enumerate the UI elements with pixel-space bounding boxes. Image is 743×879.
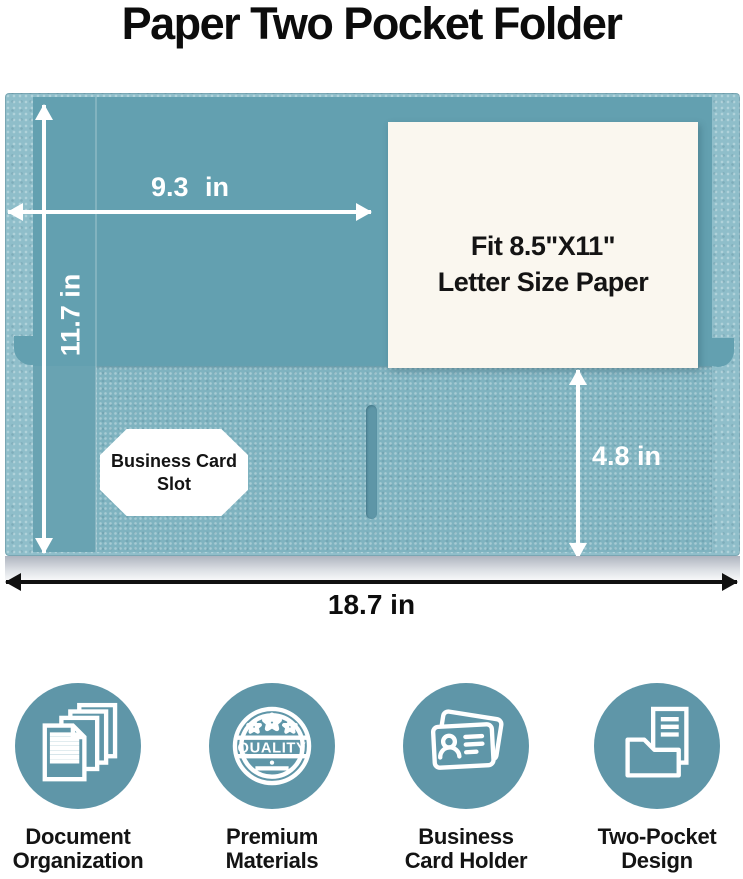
total-width-label: 18.7 in — [0, 589, 743, 621]
feature-label-line1: Premium — [226, 826, 318, 848]
page-title: Paper Two Pocket Folder — [0, 0, 743, 50]
total-width-arrow — [6, 580, 737, 584]
feature-label-line2: Design — [621, 850, 693, 872]
folder-with-paper-icon — [594, 683, 720, 809]
product-infographic: Paper Two Pocket Folder Fit 8.5"X11" Let… — [0, 0, 743, 879]
width-dimension-label: 9.3 in — [110, 172, 270, 203]
feature-label-line2: Materials — [226, 850, 319, 872]
folder-crease — [95, 97, 97, 552]
height-dimension-arrow — [42, 105, 46, 553]
letter-paper-insert: Fit 8.5"X11" Letter Size Paper — [388, 122, 698, 368]
stacked-documents-icon — [15, 683, 141, 809]
feature-business-card-holder: Business Card Holder — [366, 683, 566, 872]
paper-insert-line1: Fit 8.5"X11" — [471, 228, 615, 264]
card-slot-line2: Slot — [157, 473, 191, 496]
height-dimension-label: 11.7 in — [56, 274, 87, 357]
pocket-height-arrow — [576, 370, 580, 558]
feature-label-line1: Document — [25, 826, 130, 848]
business-card-slot-label: Business Card Slot — [100, 429, 248, 516]
paper-insert-line2: Letter Size Paper — [438, 264, 649, 300]
card-slot-line1: Business Card — [111, 450, 237, 473]
quality-badge-text: QUALITY — [238, 740, 307, 756]
feature-document-organization: Document Organization — [0, 683, 178, 872]
feature-label-line2: Organization — [13, 850, 144, 872]
business-cards-icon — [403, 683, 529, 809]
feature-label-line2: Card Holder — [405, 850, 528, 872]
pocket-height-label: 4.8 in — [592, 441, 661, 472]
center-thumb-slot — [366, 405, 377, 519]
feature-two-pocket-design: Two-Pocket Design — [557, 683, 743, 872]
folder-drop-shadow — [5, 556, 740, 583]
feature-label-line1: Two-Pocket — [598, 826, 717, 848]
quality-badge-icon: QUALITY — [209, 683, 335, 809]
width-dimension-arrow — [8, 210, 371, 214]
feature-label-line1: Business — [418, 826, 513, 848]
feature-premium-materials: QUALITY Premium Materials — [172, 683, 372, 872]
